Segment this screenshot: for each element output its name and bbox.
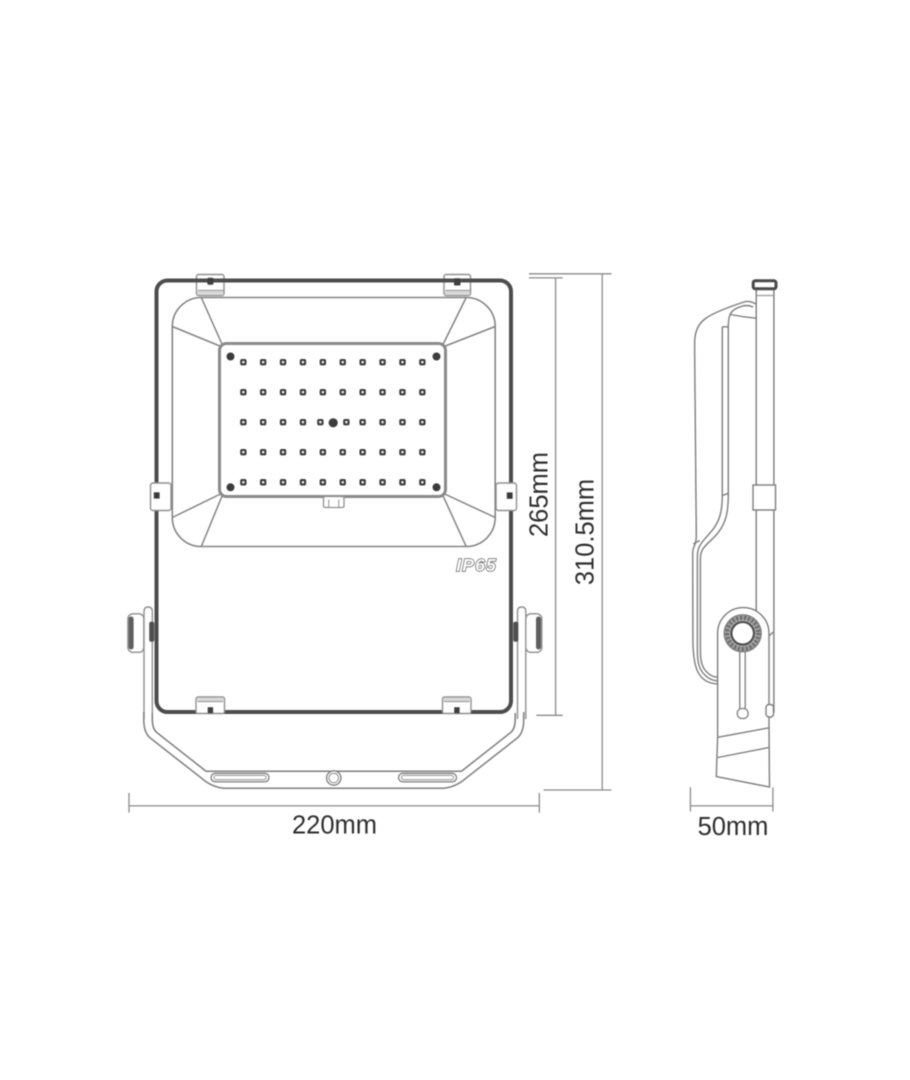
svg-text:310.5mm: 310.5mm <box>571 479 599 585</box>
svg-text:IP65: IP65 <box>456 555 497 575</box>
svg-text:50mm: 50mm <box>698 813 769 841</box>
svg-text:220mm: 220mm <box>292 812 377 840</box>
svg-text:265mm: 265mm <box>526 452 554 537</box>
